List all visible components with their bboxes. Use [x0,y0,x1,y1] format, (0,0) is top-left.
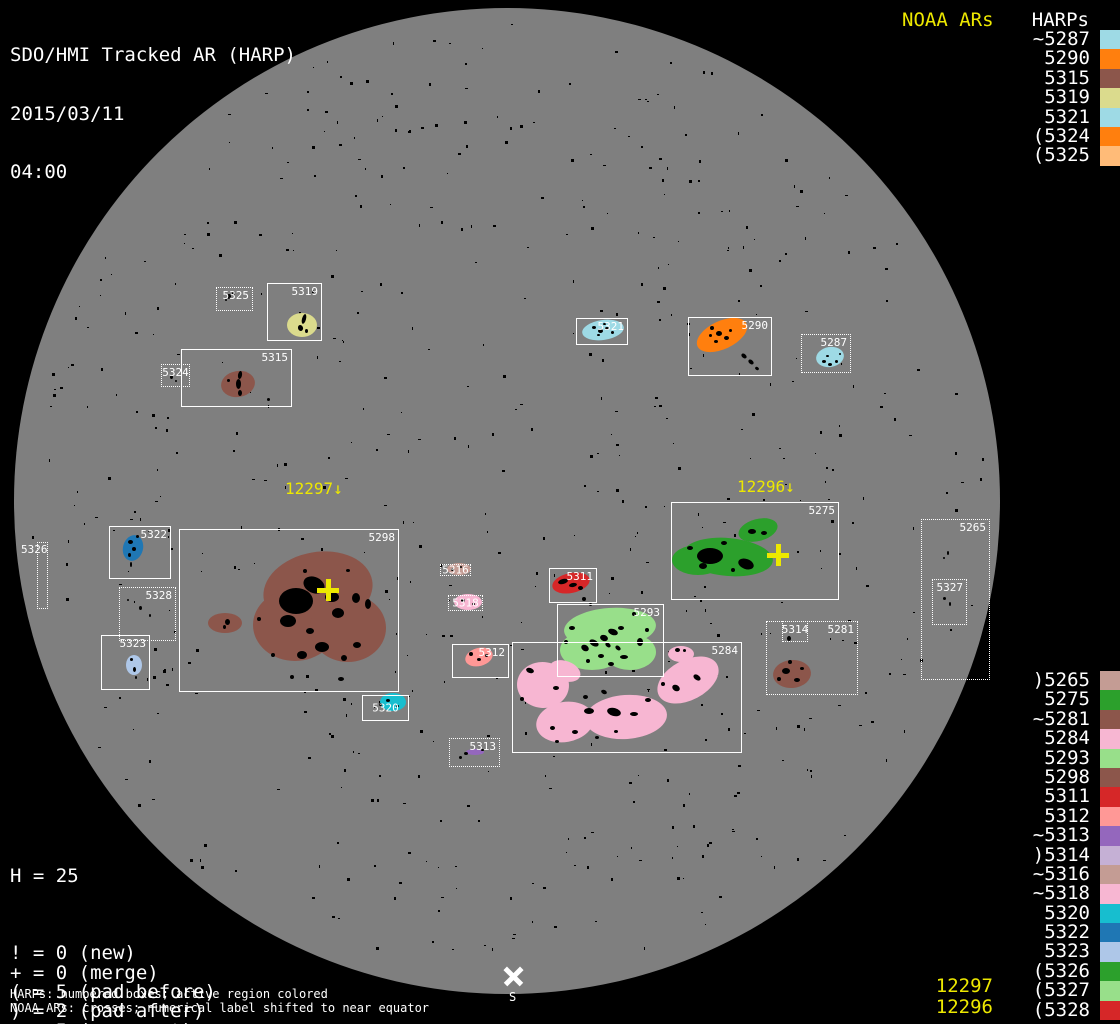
noaa-ar-number: 12297 [936,976,993,997]
harp-color-swatch [1100,807,1120,826]
harp-number: 5319 [1044,88,1090,107]
harp-number: 5284 [1044,729,1090,748]
harp-color-swatch [1100,710,1120,729]
harp-list-item: 5290 [1033,49,1120,68]
harp-color-swatch [1100,49,1120,68]
noaa-ars-header: NOAA ARs [902,11,994,30]
title-date: 2015/03/11 [10,105,296,125]
harp-list-item: (5325 [1033,146,1120,165]
south-marker: S [503,966,527,1006]
harp-list-item: 5319 [1033,88,1120,107]
harp-list-item: (5327 [1033,981,1120,1000]
harp-number: 5323 [1044,942,1090,961]
page-title: SDO/HMI Tracked AR (HARP) 2015/03/11 04:… [10,7,296,222]
harp-list-item: 5275 [1033,690,1120,709]
noaa-ar-number: 12296 [936,997,993,1018]
harp-number: 5290 [1044,49,1090,68]
harp-color-swatch [1100,127,1120,146]
harp-list-item: )5314 [1033,846,1120,865]
harp-number: (5325 [1033,146,1090,165]
harp-list-item: ~5313 [1033,826,1120,845]
harp-color-swatch [1100,671,1120,690]
footnotes: HARPs: numbered boxes; active region col… [10,988,429,1015]
harp-number: 5311 [1044,787,1090,806]
harp-list-bottom: )52655275~528152845293529853115312~5313)… [1033,671,1120,1020]
harp-color-swatch [1100,787,1120,806]
harp-number: 5275 [1044,690,1090,709]
noaa-ar-numbers: 1229712296 [936,976,993,1017]
harp-visualization: 5325531953155324532152905287532653225298… [0,0,1120,1024]
footnote-line: HARPs: numbered boxes; active region col… [10,988,429,1002]
harp-color-swatch [1100,884,1120,903]
south-pole-x-icon [503,966,524,987]
legend-line: ! = 0 (new) [10,944,227,963]
harp-list-item: ~5318 [1033,884,1120,903]
harp-number: ~5318 [1033,884,1090,903]
footnote-line: NOAA ARs: crosses; numerical label shift… [10,1002,429,1016]
harp-number: ~5313 [1033,826,1090,845]
harp-number: )5314 [1033,846,1090,865]
harp-color-swatch [1100,1001,1120,1020]
harp-list-item: 5284 [1033,729,1120,748]
harp-color-swatch [1100,865,1120,884]
harp-color-swatch [1100,146,1120,165]
harp-number: (5327 [1033,981,1090,1000]
harp-color-swatch [1100,846,1120,865]
harp-color-swatch [1100,923,1120,942]
harp-color-swatch [1100,826,1120,845]
harp-color-swatch [1100,69,1120,88]
harp-list-item: (5328 [1033,1001,1120,1020]
title-line-1: SDO/HMI Tracked AR (HARP) [10,46,296,66]
harp-number: (5328 [1033,1001,1090,1020]
legend-h-count: H = 25 [10,867,227,886]
harp-list-item: 5311 [1033,787,1120,806]
harp-color-swatch [1100,30,1120,49]
harp-color-swatch [1100,904,1120,923]
harp-color-swatch [1100,108,1120,127]
south-label: S [509,991,516,1003]
harp-color-swatch [1100,962,1120,981]
harp-list-top: ~52875290531553195321(5324(5325 [1033,30,1120,166]
harp-color-swatch [1100,729,1120,748]
harp-color-swatch [1100,981,1120,1000]
harp-color-swatch [1100,690,1120,709]
harp-color-swatch [1100,88,1120,107]
title-time: 04:00 [10,163,296,183]
harp-color-swatch [1100,942,1120,961]
harp-color-swatch [1100,768,1120,787]
harp-color-swatch [1100,749,1120,768]
harp-list-item: 5323 [1033,942,1120,961]
